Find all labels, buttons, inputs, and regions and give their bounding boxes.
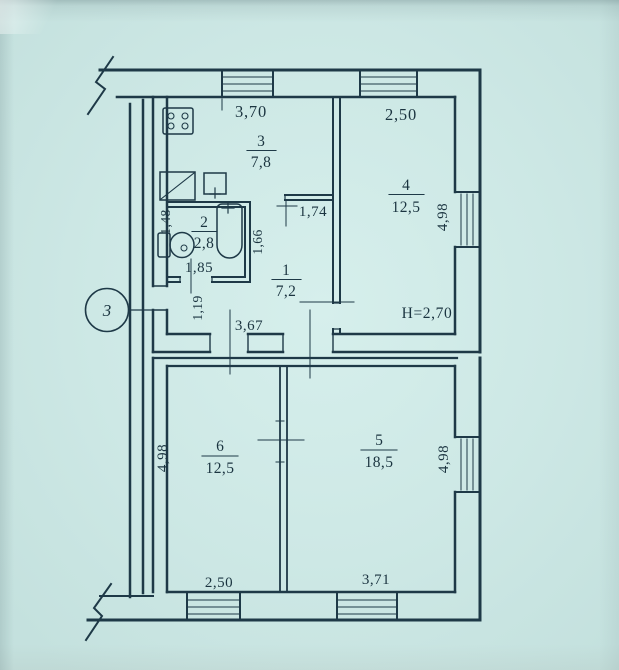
dim-hall-top: 1,74 — [299, 204, 327, 220]
room1-number: 1 — [282, 262, 290, 279]
entrance-marker-number: 3 — [102, 301, 112, 320]
dim-top-kitchen: 3,70 — [235, 102, 267, 121]
lower-unit-walls — [86, 358, 480, 640]
ceiling-height-note: H=2,70 — [402, 305, 453, 322]
dim-hall-width: 3,67 — [235, 318, 263, 334]
room4-area: 12,5 — [392, 199, 421, 216]
scanned-floor-plan: 3,70 2,50 3 7,8 4 12,5 4,98 1,74 1,66 2 … — [0, 0, 619, 670]
room2-area: 2,8 — [194, 235, 215, 252]
dim-hall-side: 1,66 — [250, 229, 265, 254]
wall-break-icon — [88, 57, 113, 114]
door-opening-room5 — [283, 334, 333, 352]
dim-right-upper: 4,98 — [435, 203, 451, 231]
room1-area: 7,2 — [276, 283, 297, 300]
room4-number: 4 — [402, 177, 410, 194]
window-top-room3 — [222, 70, 273, 97]
room3-number: 3 — [257, 133, 265, 150]
dim-bottom-room5: 3,71 — [362, 572, 390, 588]
plan-linework — [86, 57, 481, 640]
door-opening-room6 — [210, 334, 248, 352]
dim-tick — [277, 200, 297, 226]
dim-entry-side: 1,19 — [190, 295, 205, 320]
window-bottom-room5 — [337, 592, 397, 620]
bathtub-icon — [217, 203, 242, 258]
window-right-room5 — [455, 437, 480, 492]
door-opening-room4 — [333, 303, 340, 329]
top-exterior-wall — [88, 57, 480, 114]
window-bottom-room6 — [187, 592, 240, 620]
room3-area: 7,8 — [251, 154, 272, 171]
window-top-room4 — [360, 70, 417, 97]
room2-number: 2 — [200, 214, 208, 231]
room5-area: 18,5 — [365, 454, 394, 471]
dim-bath-side: 1,48 — [158, 209, 173, 234]
bathroom-door-opening — [180, 277, 212, 282]
room6-number: 6 — [216, 438, 224, 455]
room-label-fraction-bars — [192, 151, 424, 457]
entrance-door-opening — [153, 286, 167, 310]
floor-plan-drawing: 3,70 2,50 3 7,8 4 12,5 4,98 1,74 1,66 2 … — [0, 0, 619, 670]
wall-break-icon — [86, 584, 111, 640]
toilet-icon — [158, 233, 194, 258]
dim-bath-width: 1,85 — [185, 260, 213, 276]
dim-top-room4: 2,50 — [385, 105, 417, 124]
window-right-room4 — [455, 192, 480, 247]
partition-room5-room6 — [258, 366, 304, 592]
washbasin-icon — [204, 173, 226, 198]
dim-right-lower: 4,98 — [436, 445, 452, 473]
room5-number: 5 — [375, 432, 383, 449]
dim-bottom-room6: 2,50 — [205, 575, 233, 591]
right-exterior-wall-upper — [455, 70, 480, 352]
room6-area: 12,5 — [206, 460, 235, 477]
dim-left-lower: 4,98 — [155, 444, 171, 472]
left-building-wall — [130, 100, 143, 597]
sink-icon — [160, 172, 195, 200]
plan-labels: 3,70 2,50 3 7,8 4 12,5 4,98 1,74 1,66 2 … — [102, 102, 453, 591]
